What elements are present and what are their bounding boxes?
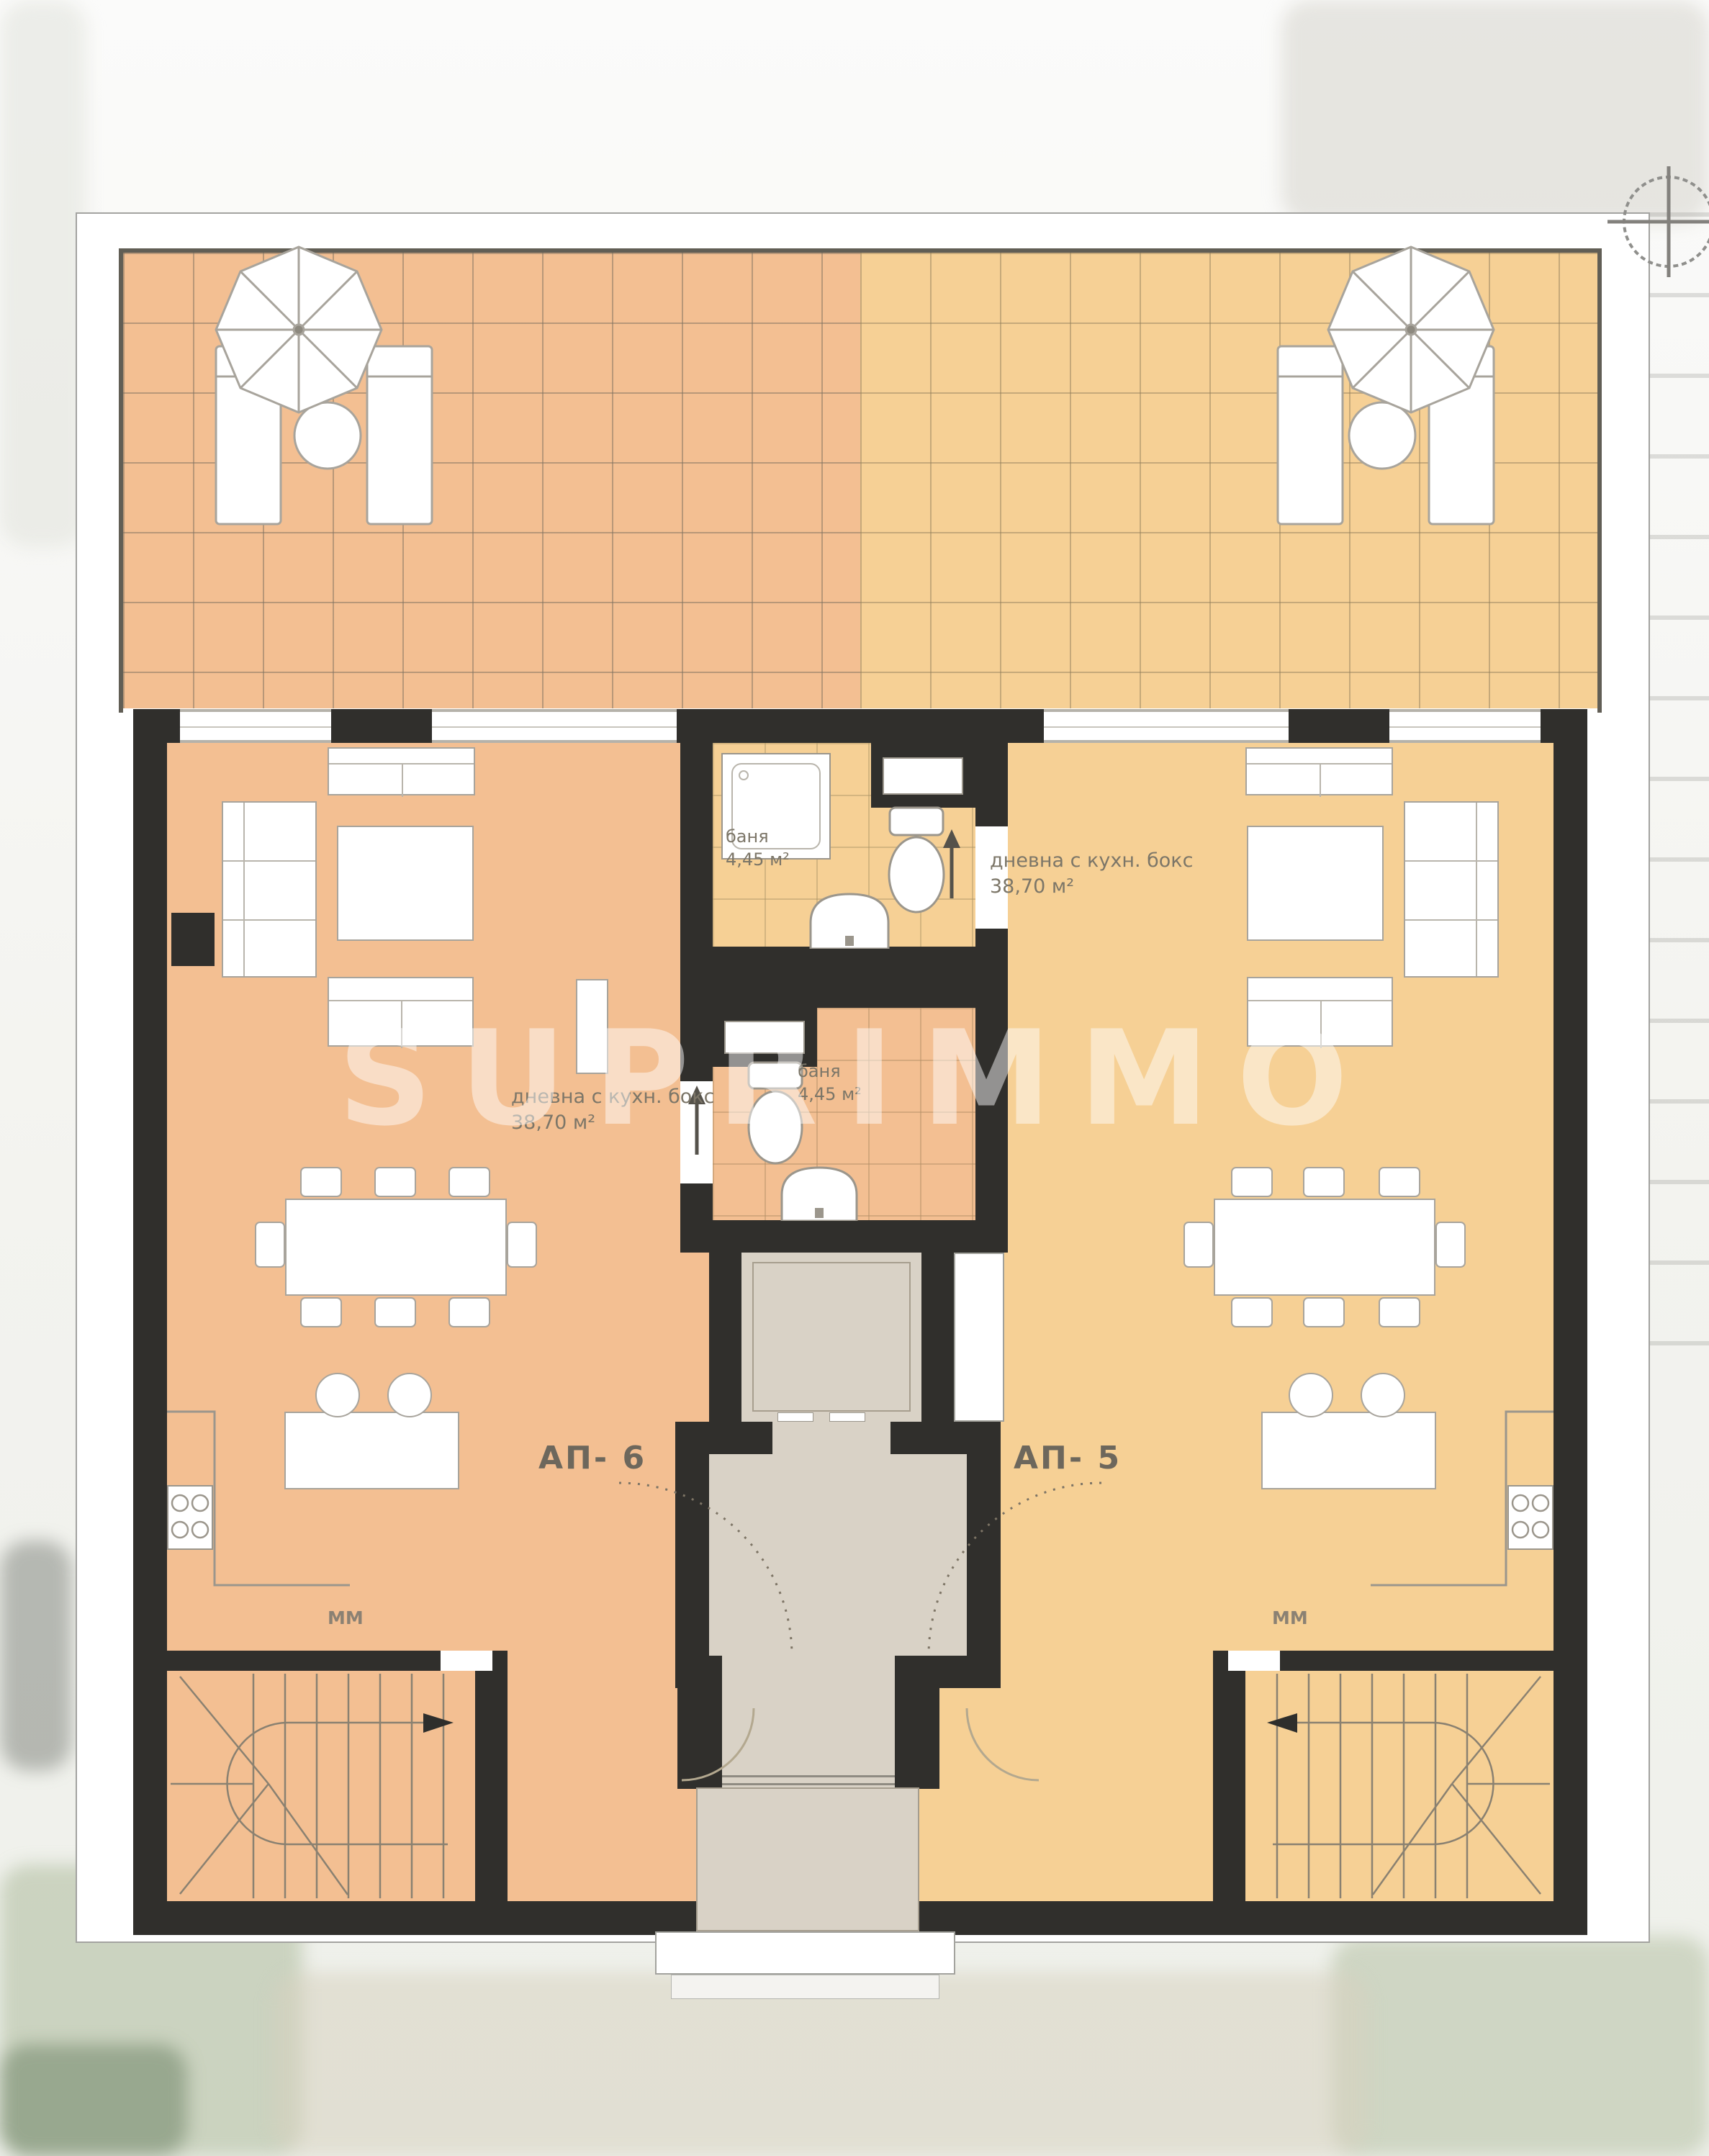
dining-table [1214, 1199, 1435, 1296]
stair-right-door-gap [1228, 1651, 1280, 1671]
chair [1303, 1167, 1345, 1197]
entrance-step-1 [655, 1931, 955, 1975]
bathroom-name: баня [798, 1060, 862, 1083]
arrow-right-icon [423, 1713, 454, 1733]
chair [1303, 1297, 1345, 1327]
living-room-name: дневна с кухн. бокс [511, 1084, 714, 1110]
apartment-door-swings [576, 1469, 1152, 1670]
sink-icon [779, 1165, 860, 1221]
stair-left-wall-right [475, 1671, 508, 1901]
porch-door-swings [648, 1705, 1080, 1784]
dining-table [285, 1199, 507, 1296]
kitchen-mark-right: ММ [1272, 1607, 1308, 1628]
staircase-right [1245, 1671, 1554, 1901]
sofa [328, 747, 475, 795]
entrance-porch [696, 1787, 919, 1931]
coffee-table [1247, 826, 1384, 941]
wall-below-elevator-right [890, 1422, 1001, 1454]
living-room-area: 38,70 м² [511, 1110, 714, 1136]
chair [300, 1297, 342, 1327]
photo-balcony-strip [1649, 212, 1709, 1371]
photo-path-bottom [274, 1972, 1368, 2156]
stair-right-wall-left [1213, 1671, 1245, 1901]
photo-parasol-left [0, 1541, 72, 1771]
coffee-table [337, 826, 474, 941]
staircase-left [167, 1671, 475, 1901]
bathroom-area: 4,45 м² [798, 1083, 862, 1106]
photo-tree-top-left [0, 0, 86, 547]
elevator-wall-right [921, 1253, 954, 1422]
chair [1435, 1222, 1466, 1268]
bathroom-name: баня [726, 825, 790, 848]
hall-cabinet [576, 979, 608, 1074]
floor-plan-canvas: баня 4,45 м² баня 4,45 м² [0, 0, 1709, 2156]
living-room-label-left: дневна с кухн. бокс 38,70 м² [511, 1084, 714, 1136]
kitchen-mark-left: ММ [328, 1607, 364, 1628]
window-top-right-small [1389, 709, 1541, 743]
corridor-wall-top-right [895, 1656, 1001, 1688]
sofa [1247, 977, 1393, 1047]
cooktop-icon [167, 1485, 213, 1550]
bathroom-lower-label: баня 4,45 м² [798, 1060, 862, 1106]
light-shaft [954, 1253, 1004, 1422]
compass-icon [1607, 161, 1709, 283]
elevator-landing [772, 1422, 890, 1454]
living-room-area: 38,70 м² [990, 874, 1193, 900]
shower-drain [739, 770, 749, 780]
arrow-left-icon [1267, 1713, 1297, 1733]
apartment-5-label: АП- 5 [1014, 1440, 1122, 1476]
round-table-icon [294, 402, 361, 469]
sofa [328, 977, 474, 1047]
arrow-up-icon [936, 829, 968, 901]
parasol-icon [216, 247, 382, 412]
terrace-set-right [1268, 229, 1517, 528]
entrance-step-2 [671, 1975, 939, 1999]
sofa [222, 801, 317, 978]
living-room-name: дневна с кухн. бокс [990, 848, 1193, 874]
sun-lounger-icon [367, 346, 432, 524]
chair [1231, 1167, 1273, 1197]
photo-shrub-corner [0, 2044, 187, 2156]
window-terrace-door-left [432, 709, 677, 743]
bathroom-area: 4,45 м² [726, 848, 790, 871]
parasol-icon [1328, 247, 1494, 412]
sofa [1245, 747, 1393, 795]
chair [1379, 1297, 1420, 1327]
sofa [1404, 801, 1499, 978]
wall-right [1554, 709, 1587, 1935]
wall-below-elevator-left [675, 1422, 772, 1454]
terrace-set-left [193, 229, 441, 528]
wall-top [133, 709, 1587, 743]
elevator-door-mark [829, 1412, 865, 1422]
elevator-wall-left [709, 1253, 741, 1422]
wall-between-bathrooms [680, 979, 1008, 1008]
bathroom-upper-label: баня 4,45 м² [726, 825, 790, 871]
chair [448, 1297, 490, 1327]
living-room-label-right: дневна с кухн. бокс 38,70 м² [990, 848, 1193, 900]
chair [300, 1167, 342, 1197]
cooktop-icon [1507, 1485, 1554, 1550]
chair [374, 1297, 416, 1327]
window-terrace-door-right [1044, 709, 1289, 743]
window-top-left-small [180, 709, 331, 743]
bathroom-upper-niche-shelf [883, 757, 963, 795]
apartment-6-label: АП- 6 [538, 1440, 646, 1476]
bar-stool [387, 1373, 432, 1417]
bathroom-lower-niche-shelf [724, 1021, 805, 1054]
chair [1231, 1297, 1273, 1327]
sun-lounger-icon [1278, 346, 1343, 524]
chair [507, 1222, 537, 1268]
stair-left-door-gap [441, 1651, 492, 1671]
chair [374, 1167, 416, 1197]
elevator-door-mark [777, 1412, 813, 1422]
corridor-wall-top-left [675, 1656, 722, 1688]
round-table-icon [1349, 402, 1415, 469]
chair [255, 1222, 285, 1268]
chair [1183, 1222, 1214, 1268]
bar-stool [1289, 1373, 1333, 1417]
sink-icon [808, 891, 891, 949]
tv-unit [171, 913, 215, 966]
chair [448, 1167, 490, 1197]
photo-green-bottom-right [1332, 1936, 1709, 2156]
wall-left [133, 709, 167, 1935]
chair [1379, 1167, 1420, 1197]
elevator-car-outline [752, 1262, 911, 1412]
